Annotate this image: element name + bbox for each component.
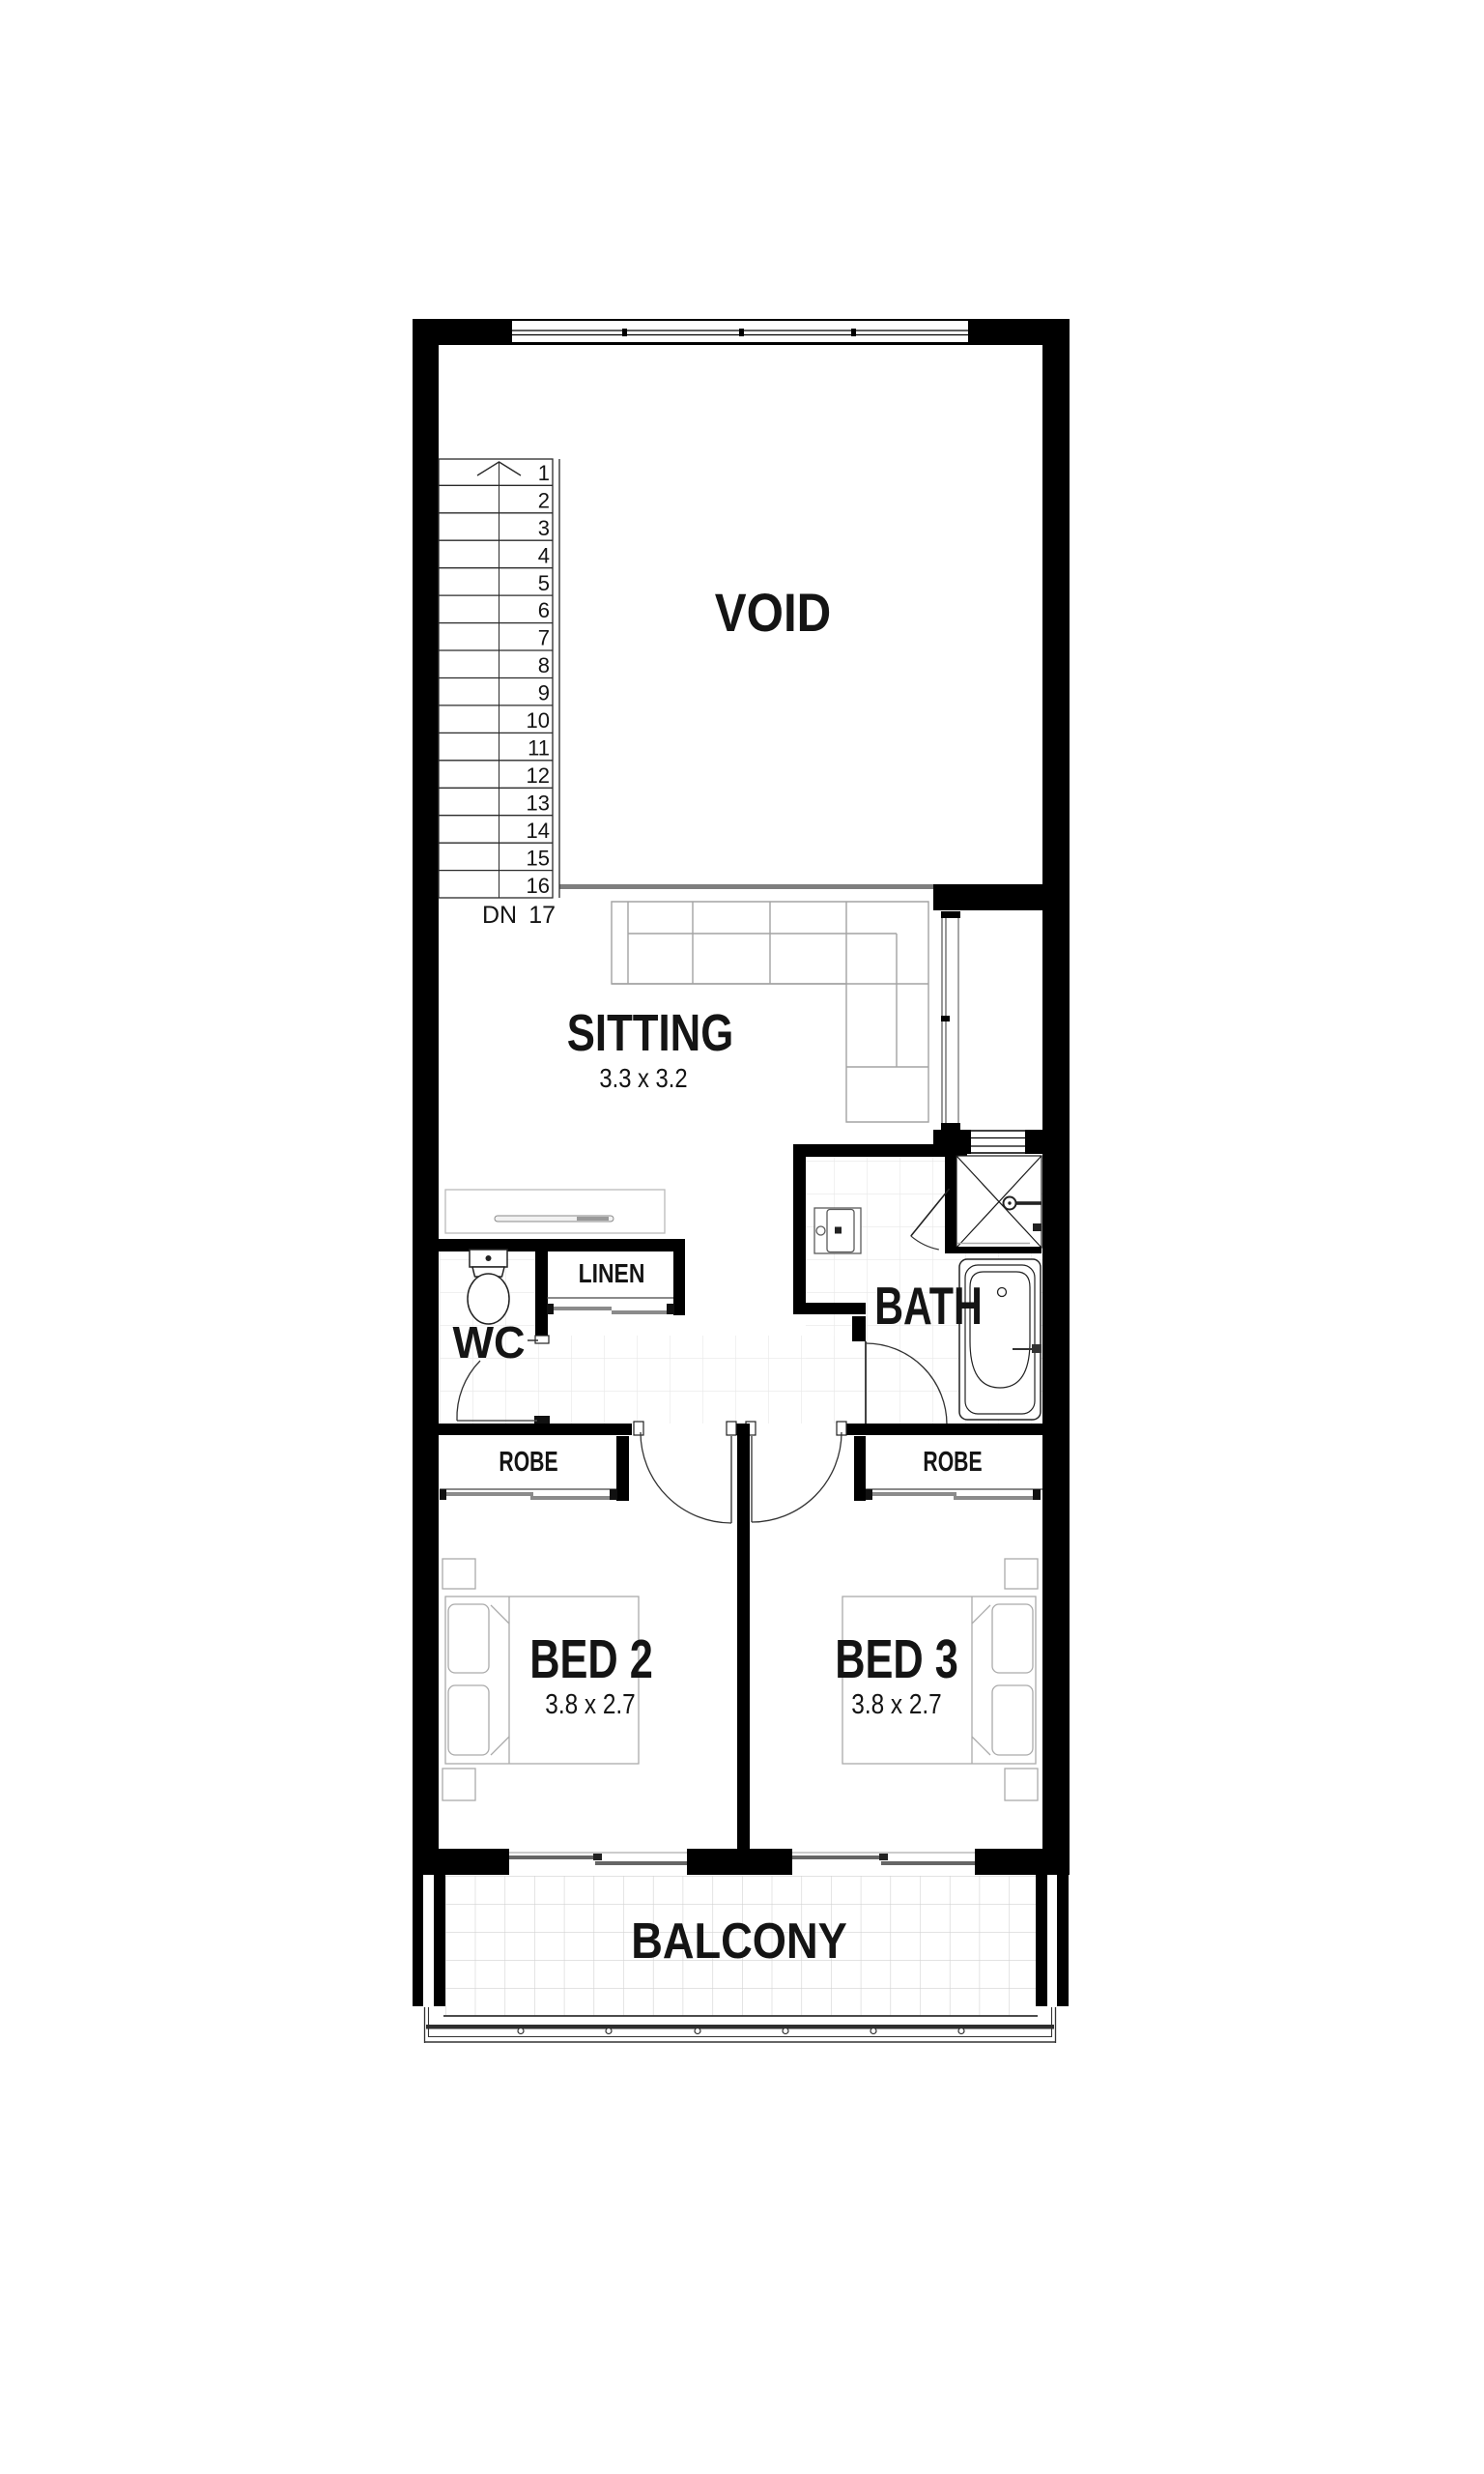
svg-text:5: 5 <box>538 571 550 595</box>
svg-text:BATH: BATH <box>874 1277 983 1336</box>
svg-text:VOID: VOID <box>715 583 831 644</box>
svg-text:3.3 x 3.2: 3.3 x 3.2 <box>599 1062 687 1093</box>
svg-text:ROBE: ROBE <box>499 1447 557 1478</box>
svg-text:SITTING: SITTING <box>567 1005 733 1062</box>
svg-text:2: 2 <box>538 489 550 513</box>
svg-text:16: 16 <box>527 874 550 898</box>
svg-text:BALCONY: BALCONY <box>631 1913 847 1970</box>
svg-text:15: 15 <box>527 846 550 870</box>
svg-text:3: 3 <box>538 516 550 540</box>
svg-text:ROBE: ROBE <box>923 1447 982 1478</box>
svg-text:10: 10 <box>527 708 550 733</box>
svg-text:11: 11 <box>528 736 550 761</box>
svg-text:LINEN: LINEN <box>579 1259 645 1289</box>
svg-text:3.8 x 2.7: 3.8 x 2.7 <box>545 1688 635 1719</box>
svg-text:14: 14 <box>527 819 550 843</box>
svg-text:6: 6 <box>538 598 550 622</box>
svg-text:7: 7 <box>538 626 550 650</box>
svg-text:DN: DN <box>482 902 517 929</box>
svg-text:4: 4 <box>538 543 550 567</box>
svg-text:17: 17 <box>528 902 556 929</box>
svg-text:8: 8 <box>538 653 550 677</box>
svg-text:BED 2: BED 2 <box>529 1627 653 1689</box>
svg-text:1: 1 <box>538 461 550 485</box>
svg-text:9: 9 <box>538 681 550 705</box>
svg-text:13: 13 <box>527 791 550 815</box>
svg-text:12: 12 <box>527 763 550 788</box>
svg-text:3.8 x 2.7: 3.8 x 2.7 <box>851 1688 941 1719</box>
svg-text:BED 3: BED 3 <box>835 1627 958 1689</box>
svg-text:WC: WC <box>452 1318 525 1368</box>
